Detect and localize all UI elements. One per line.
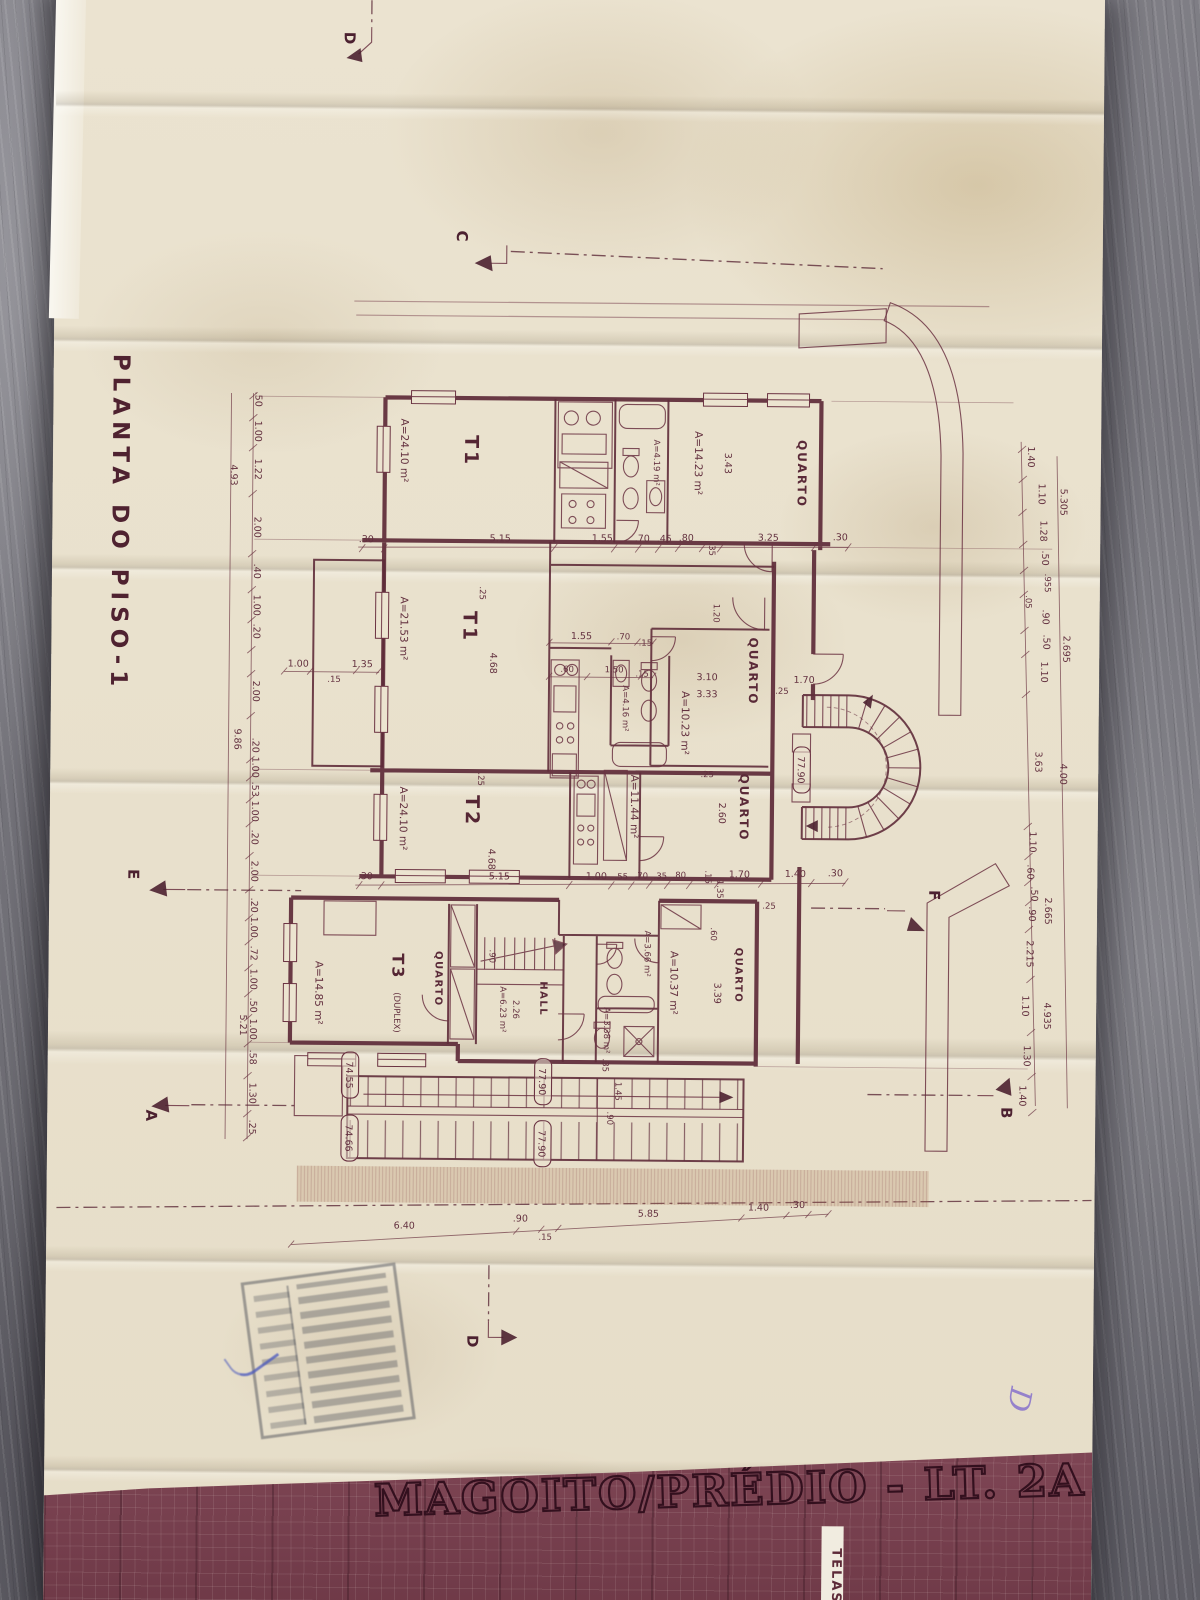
room-area: A=3.66 m² xyxy=(641,930,651,976)
room-label: T1 xyxy=(460,435,482,467)
plan-title: PLANTA DO PISO-1 xyxy=(105,354,134,693)
dim: .80 xyxy=(673,871,687,881)
dim: 3.25 xyxy=(758,533,779,544)
dim: 1.20 xyxy=(711,604,721,623)
exterior-walls xyxy=(290,397,832,1068)
dim: 1.40 xyxy=(748,1203,769,1214)
room-area: A=10.37 m² xyxy=(667,951,680,1015)
dim: 1.55 xyxy=(592,533,613,544)
dim: 1.00 xyxy=(288,658,309,669)
dim: .50 xyxy=(247,998,258,1013)
dim: 1.00 xyxy=(249,801,260,822)
dim: 1.30 xyxy=(246,1083,257,1104)
dim: 1.35 xyxy=(714,880,724,899)
dim: 4.935 xyxy=(1041,1002,1052,1029)
closet-quarto-bottom xyxy=(661,905,701,929)
dim: .955 xyxy=(1042,574,1052,593)
dim: .70 xyxy=(617,632,631,642)
dim: 1.40 xyxy=(1025,446,1036,467)
dim: .90 xyxy=(513,1213,528,1224)
dim: .15 xyxy=(635,670,649,680)
ink-stamp xyxy=(241,1262,416,1439)
dim: .60 xyxy=(1024,864,1035,879)
dim: 2.00 xyxy=(248,861,259,882)
dim: .25 xyxy=(700,770,714,780)
dim: 3.33 xyxy=(696,689,717,700)
room-area: A=6.23 m² xyxy=(497,986,507,1032)
level-74-66: 74.66 xyxy=(342,1124,353,1151)
dim: 2.26 xyxy=(510,1000,520,1019)
tiled-terrace xyxy=(294,560,384,1117)
dim: 1.10 xyxy=(1019,995,1030,1016)
dim: 5.15 xyxy=(490,533,511,544)
dim: .70 xyxy=(635,872,649,882)
room-label: QUARTO xyxy=(746,638,761,706)
dim: 1.00 xyxy=(586,871,607,882)
dim: 1.10 xyxy=(1027,831,1038,852)
dim: 5.85 xyxy=(638,1209,659,1220)
room-area: A=14.85 m² xyxy=(312,961,325,1025)
dim: 1.35 xyxy=(352,659,373,670)
dim: .53 xyxy=(249,782,260,797)
dim: .40 xyxy=(251,564,262,579)
room-area: A=14.23 m² xyxy=(692,431,705,495)
dim: 1.55 xyxy=(571,631,592,642)
dim: .35 xyxy=(654,872,668,882)
dim: 1.22 xyxy=(252,459,263,480)
dim: 6.40 xyxy=(394,1220,415,1231)
room-label: T1 xyxy=(458,611,480,643)
dim: 1.10 xyxy=(1036,483,1047,504)
title-block-tag: TELAS xyxy=(821,1526,844,1600)
dim: 1.70 xyxy=(729,869,750,880)
dim: .25 xyxy=(477,586,487,600)
dim: 2.60 xyxy=(716,803,727,824)
dim: .90 xyxy=(1040,610,1051,625)
dim: 1.40 xyxy=(1016,1085,1027,1106)
room-area: A=11.44 m² xyxy=(628,775,641,839)
room-area: A=10.23 m² xyxy=(678,691,691,755)
t3-wardrobe xyxy=(450,905,475,1039)
dim: .30 xyxy=(828,868,843,879)
window-symbols xyxy=(283,389,810,1070)
dim: .60 xyxy=(708,927,718,941)
section-letter-b: B xyxy=(997,1107,1015,1119)
dim: .35 xyxy=(600,1058,610,1072)
room-label: T3 xyxy=(388,953,407,979)
room-area: A=3.38 m² xyxy=(601,1007,611,1053)
curved-staircase xyxy=(792,694,921,840)
dim: .15 xyxy=(702,870,712,884)
room-label: QUARTO xyxy=(737,773,752,841)
floor-plan-drawing: D C E F A B D 77.90 74.55 74.66 77.90 77… xyxy=(43,0,1105,1600)
room-label: HALL xyxy=(537,981,548,1016)
dim: 4.93 xyxy=(228,464,239,485)
dim: .15 xyxy=(327,675,341,685)
kitchen-upper-fixtures xyxy=(557,402,612,528)
dim: .90 xyxy=(487,949,497,963)
kitchen-mid-fixtures xyxy=(550,660,579,778)
dim: .15 xyxy=(538,1233,552,1243)
dim: 1.45 xyxy=(612,1082,622,1101)
dim: .60 xyxy=(560,665,574,675)
dim: 1.00 xyxy=(252,421,263,442)
dim: .15 xyxy=(639,639,653,649)
section-letter-c: C xyxy=(453,230,471,241)
dim: .35 xyxy=(706,542,716,556)
dim: 1.00 xyxy=(248,917,259,938)
room-label: QUARTO xyxy=(795,440,810,508)
dim: 2.695 xyxy=(1060,636,1071,663)
dim: 1.10 xyxy=(1038,661,1049,682)
dim: .90 xyxy=(604,1112,614,1126)
blueprint-paper-sheet: D C E F A B D 77.90 74.55 74.66 77.90 77… xyxy=(43,0,1105,1600)
dim: .80 xyxy=(679,533,694,544)
dim: 1.50 xyxy=(605,665,624,675)
dim: .45 xyxy=(657,534,672,545)
dim: .50 xyxy=(252,392,263,407)
level-77-90: 77.90 xyxy=(536,1068,547,1095)
dim: 4.00 xyxy=(1057,764,1068,785)
section-letter-a: A xyxy=(142,1109,160,1121)
dim: .50 xyxy=(1040,635,1051,650)
dim: 3.43 xyxy=(722,453,733,474)
dim: 9.86 xyxy=(231,728,242,749)
dim: .55 xyxy=(615,872,629,882)
dim: 1.70 xyxy=(793,675,814,686)
level-77-90: 77.90 xyxy=(535,1130,546,1157)
dim: 3.10 xyxy=(696,672,717,683)
room-area: A=24.10 m² xyxy=(398,419,411,483)
dim: .50 xyxy=(1039,550,1050,565)
dim: 1.28 xyxy=(1037,520,1048,541)
section-letter-d: D xyxy=(341,32,359,45)
dim: .30 xyxy=(359,534,374,545)
dim: .25 xyxy=(246,1120,257,1135)
room-label: QUARTO xyxy=(732,948,743,1004)
dim: .72 xyxy=(248,946,259,961)
dim: 1.00 xyxy=(251,595,262,616)
dim: .05 xyxy=(1023,595,1033,609)
dim: .25 xyxy=(775,687,789,697)
room-label: T2 xyxy=(461,795,483,827)
dim: .20 xyxy=(248,898,259,913)
dim: .20 xyxy=(249,738,260,753)
dim: .30 xyxy=(790,1200,805,1211)
room-area: A=4.16 m² xyxy=(620,685,630,731)
dim: 1.40 xyxy=(785,869,806,880)
dim: 5.305 xyxy=(1058,489,1069,516)
dim: 4.68 xyxy=(487,653,498,674)
dim: .70 xyxy=(635,534,650,545)
dim: 2.00 xyxy=(251,517,262,538)
dim: 4.68 xyxy=(485,849,496,870)
dim: .20 xyxy=(249,830,260,845)
room-area: A=24.10 m² xyxy=(397,787,410,851)
room-area: A=21.53 m² xyxy=(397,597,410,661)
dim: 5.15 xyxy=(489,871,510,882)
dim: .58 xyxy=(247,1050,258,1065)
dim: .25 xyxy=(762,902,776,912)
dim: .20 xyxy=(250,624,261,639)
level-77-90: 77.90 xyxy=(795,756,806,783)
dim: 3.63 xyxy=(1032,751,1043,772)
dim: 1.00 xyxy=(249,757,260,778)
room-sublabel: (DUPLEX) xyxy=(391,992,401,1033)
dim: 1.30 xyxy=(1021,1045,1032,1066)
dim: .30 xyxy=(833,532,848,543)
kitchen-t2-fixtures xyxy=(573,770,627,864)
section-letter-f: F xyxy=(925,890,943,900)
dim: 5.21 xyxy=(237,1014,248,1035)
room-label: QUARTO xyxy=(432,951,443,1007)
room-area: A=4.19 m² xyxy=(651,440,661,486)
dim: 1.00 xyxy=(247,969,258,990)
dim: .90 xyxy=(1026,906,1037,921)
dim: 2.00 xyxy=(250,681,261,702)
section-letter-d2: D xyxy=(463,1335,481,1348)
dim: 2.665 xyxy=(1042,897,1053,924)
level-74-55: 74.55 xyxy=(343,1061,354,1088)
dim: 3.39 xyxy=(711,983,722,1004)
dim: .25 xyxy=(475,772,485,786)
section-letter-e: E xyxy=(124,869,142,879)
dim: .30 xyxy=(358,871,373,882)
dim: 2.215 xyxy=(1024,940,1035,967)
stamp-text-rows xyxy=(296,1273,404,1424)
photo-floor-plan-on-wood-table: D C E F A B D 77.90 74.55 74.66 77.90 77… xyxy=(0,0,1200,1600)
dim: .50 xyxy=(1028,886,1039,901)
